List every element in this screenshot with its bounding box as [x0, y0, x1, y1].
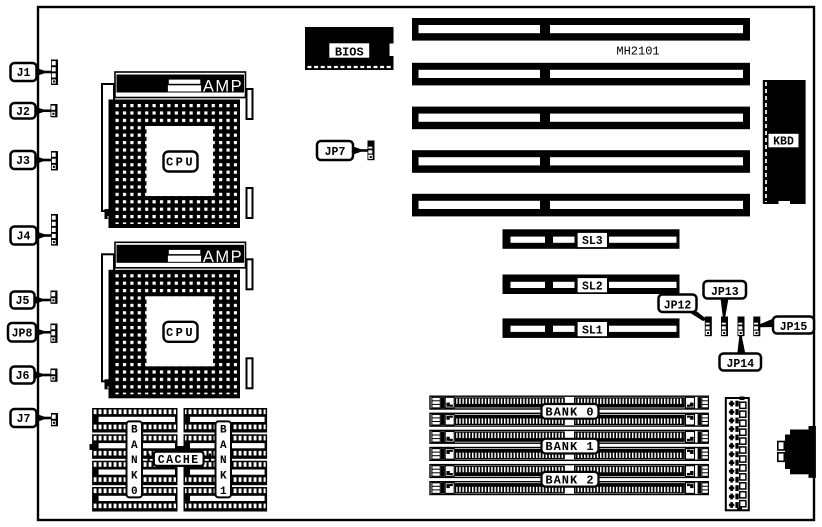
svg-text:JP12: JP12: [664, 299, 692, 312]
svg-text:B: B: [220, 424, 227, 436]
svg-text:JP7: JP7: [325, 146, 346, 159]
svg-text:J1: J1: [17, 67, 31, 80]
svg-text:BANK 0: BANK 0: [545, 405, 594, 419]
svg-text:BANK 1: BANK 1: [545, 440, 594, 454]
svg-text:SL2: SL2: [582, 280, 603, 293]
svg-text:A: A: [220, 440, 227, 452]
svg-text:JP8: JP8: [12, 327, 33, 340]
svg-text:JP15: JP15: [780, 321, 808, 334]
svg-text:J7: J7: [17, 413, 31, 426]
svg-text:BIOS: BIOS: [335, 45, 364, 59]
svg-text:CACHE: CACHE: [158, 454, 200, 467]
svg-text:J4: J4: [17, 231, 31, 244]
svg-text:AMP: AMP: [203, 248, 243, 266]
svg-text:J5: J5: [16, 295, 30, 308]
svg-text:N: N: [220, 455, 227, 467]
svg-text:CPU: CPU: [166, 326, 195, 340]
svg-text:KBD: KBD: [773, 136, 794, 149]
svg-text:B: B: [131, 424, 138, 436]
svg-text:1: 1: [220, 486, 227, 498]
svg-text:0: 0: [131, 486, 138, 498]
svg-text:J2: J2: [16, 106, 30, 119]
svg-text:BANK 2: BANK 2: [545, 473, 594, 487]
svg-text:A: A: [131, 440, 138, 452]
svg-text:SL1: SL1: [582, 324, 603, 337]
svg-text:JP14: JP14: [726, 358, 754, 371]
svg-text:CPU: CPU: [166, 156, 195, 170]
svg-text:J3: J3: [16, 155, 30, 168]
svg-text:JP13: JP13: [711, 286, 739, 299]
svg-text:SL3: SL3: [582, 235, 603, 248]
svg-text:MH2101: MH2101: [616, 45, 659, 59]
svg-text:J6: J6: [16, 370, 30, 383]
svg-text:K: K: [131, 471, 138, 483]
svg-text:N: N: [131, 455, 138, 467]
svg-text:AMP: AMP: [203, 78, 243, 96]
svg-text:K: K: [220, 471, 227, 483]
